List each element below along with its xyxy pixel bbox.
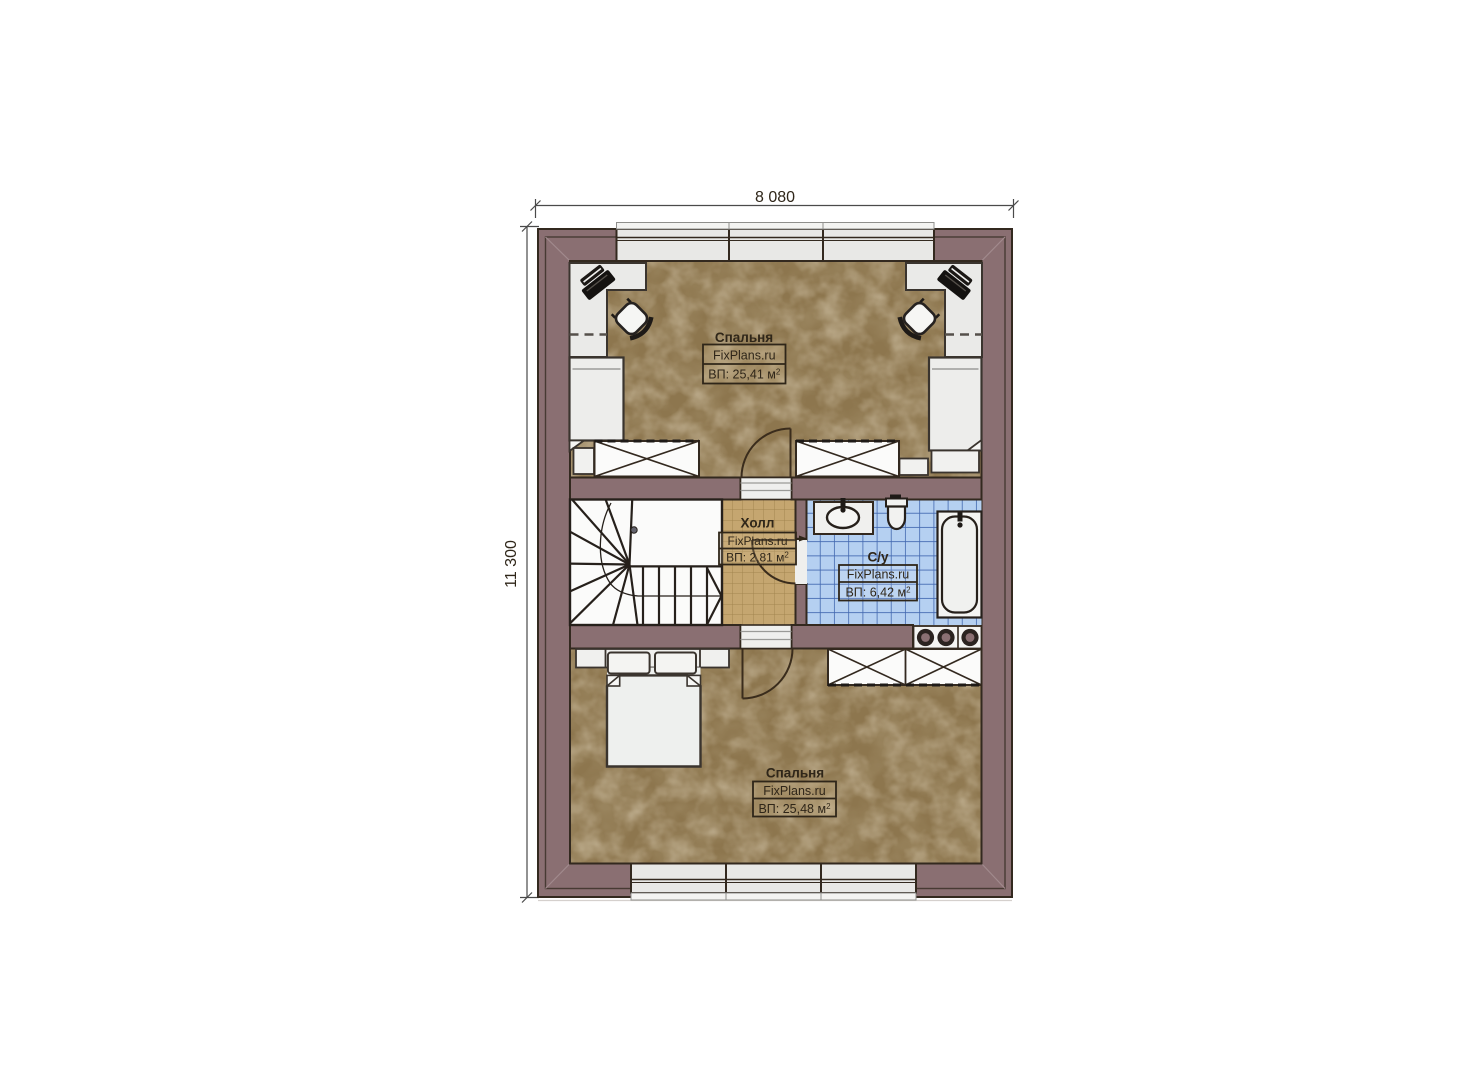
svg-text:Холл: Холл bbox=[741, 516, 775, 531]
svg-text:FixPlans.ru: FixPlans.ru bbox=[847, 568, 910, 582]
svg-text:FixPlans.ru: FixPlans.ru bbox=[713, 349, 776, 363]
svg-text:ВП: 2,81 м2: ВП: 2,81 м2 bbox=[726, 551, 789, 565]
svg-text:ВП: 6,42 м2: ВП: 6,42 м2 bbox=[845, 586, 911, 600]
svg-text:8 080: 8 080 bbox=[755, 189, 795, 206]
svg-text:ВП: 25,48 м2: ВП: 25,48 м2 bbox=[758, 802, 831, 816]
svg-text:Спальня: Спальня bbox=[766, 766, 824, 781]
svg-text:FixPlans.ru: FixPlans.ru bbox=[727, 534, 787, 548]
svg-text:ВП: 25,41 м2: ВП: 25,41 м2 bbox=[708, 368, 781, 382]
svg-text:Спальня: Спальня bbox=[715, 330, 773, 345]
svg-text:11 300: 11 300 bbox=[503, 540, 520, 588]
svg-text:С/у: С/у bbox=[867, 550, 889, 565]
svg-text:FixPlans.ru: FixPlans.ru bbox=[763, 784, 826, 798]
